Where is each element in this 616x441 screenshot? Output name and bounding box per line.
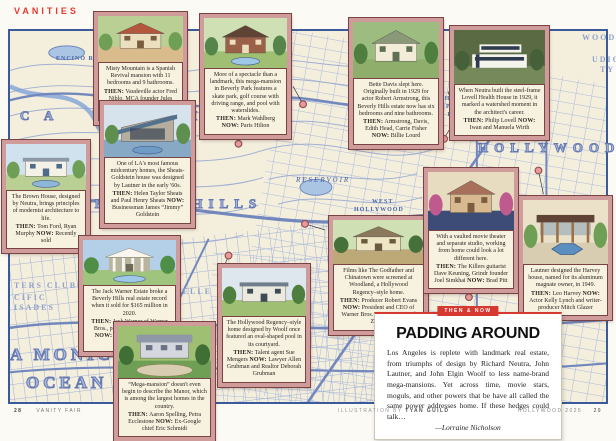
folio-left: 28VANITY FAIR [14, 408, 82, 414]
map-marker [235, 140, 242, 147]
article-title: PADDING AROUND [387, 325, 549, 343]
callout-then: THEN: Philip Lovell [464, 118, 517, 124]
callout-then: THEN: Leo Harvey [531, 291, 581, 297]
callout-desc: The Jack Warner Estate broke a Beverly H… [87, 289, 172, 318]
folio-issue: HOLLYWOOD 2025 [518, 408, 582, 414]
callout-desc: Misty Mountain is a Spanish Revival mans… [102, 66, 179, 88]
magazine-spread: { "page": { "brand": "VANITIES", "footer… [0, 0, 616, 420]
house-illustration [104, 105, 191, 158]
illustration-credit: ILLUSTRATION BY TYAN GUILD [338, 408, 449, 414]
folio: 28VANITY FAIR ILLUSTRATION BY TYAN GUILD… [0, 406, 616, 416]
callout-sheats-goldstein: One of LA's most famous midcentury homes… [100, 101, 195, 228]
callout-then: THEN: Mark Wahlberg [216, 116, 275, 122]
house-illustration [454, 30, 545, 85]
map-label: WOOD [582, 33, 616, 42]
map-label: TY [600, 65, 615, 74]
callout-now: NOW: Recently sold [36, 231, 76, 244]
callout-desc: Bette Davis slept here. Originally built… [357, 82, 435, 118]
callout-brown-house: The Brown House, designed by Neutra, bri… [2, 140, 90, 253]
then-and-now-tag: THEN & NOW [437, 306, 498, 316]
callout-harvey-house: Lautner designed the Harvey house, named… [519, 196, 612, 320]
house-illustration [83, 240, 176, 286]
map-marker [302, 221, 309, 228]
house-illustration [222, 268, 306, 317]
callout-desc: When Neutra built the steel-frame Lovell… [458, 88, 541, 117]
article-box: THEN & NOW PADDING AROUND Los Angeles is… [374, 312, 562, 440]
callout-the-manor: “Mega-mansion” doesn't even begin to des… [114, 322, 215, 441]
callout-bette-davis-estate: Bette Davis slept here. Originally built… [349, 18, 443, 149]
house-illustration [204, 18, 287, 69]
masthead-vanities: VANITIES [14, 6, 79, 16]
house-illustration [523, 200, 608, 265]
callout-now: NOW: Paris Hilton [222, 123, 270, 129]
map-label: C A [20, 108, 59, 124]
house-illustration [428, 172, 514, 231]
callout-lovell-health-house: When Neutra built the steel-frame Lovell… [450, 26, 549, 140]
house-illustration [353, 22, 439, 79]
map-marker [535, 167, 542, 174]
callout-beverly-park: More of a spectacle than a landmark, thi… [200, 14, 291, 139]
callout-desc: The Hollywood Regency–style home designe… [226, 320, 302, 349]
map-label: RESERVOIR [296, 176, 350, 184]
callout-then: THEN: Producer Robert Evans [340, 298, 417, 304]
house-illustration [333, 220, 424, 265]
map-label: HOLLYWOOD [478, 140, 616, 156]
house-illustration [118, 326, 211, 379]
callout-now: NOW: Billie Lourd [372, 133, 420, 139]
map-marker [300, 101, 307, 108]
map-label: UDIO [592, 55, 616, 64]
callout-desc: With a vaulted movie theater and separat… [432, 234, 510, 263]
folio-right-page: 29 [594, 408, 602, 414]
callout-now: NOW: Brad Pitt [467, 278, 507, 284]
callout-brad-pitt-house: With a vaulted movie theater and separat… [424, 168, 518, 293]
callout-mengers-house: The Hollywood Regency–style home designe… [218, 264, 310, 387]
callout-desc: One of LA's most famous midcentury homes… [108, 161, 187, 190]
map-label: TERS CLUB [14, 281, 77, 290]
map-marker [466, 294, 473, 301]
callout-desc: Lautner designed the Harvey house, named… [527, 268, 604, 290]
callout-then: THEN: Armstrong, Davis, Edith Head, Carr… [363, 119, 429, 132]
map-label: HOLLYWOOD [354, 207, 404, 213]
callout-desc: Films like The Godfather and Chinatown w… [337, 268, 420, 297]
article-byline: —Lorraine Nicholson [387, 423, 549, 432]
map-label: ISADES [14, 303, 55, 312]
callout-desc: The Brown House, designed by Neutra, bri… [10, 194, 82, 223]
map-label: CIFIC [14, 293, 47, 302]
map-marker [225, 252, 232, 259]
house-illustration [6, 144, 86, 191]
map-label: WEST [372, 199, 393, 205]
house-illustration [98, 16, 183, 63]
callout-desc: More of a spectacle than a landmark, thi… [208, 72, 283, 115]
